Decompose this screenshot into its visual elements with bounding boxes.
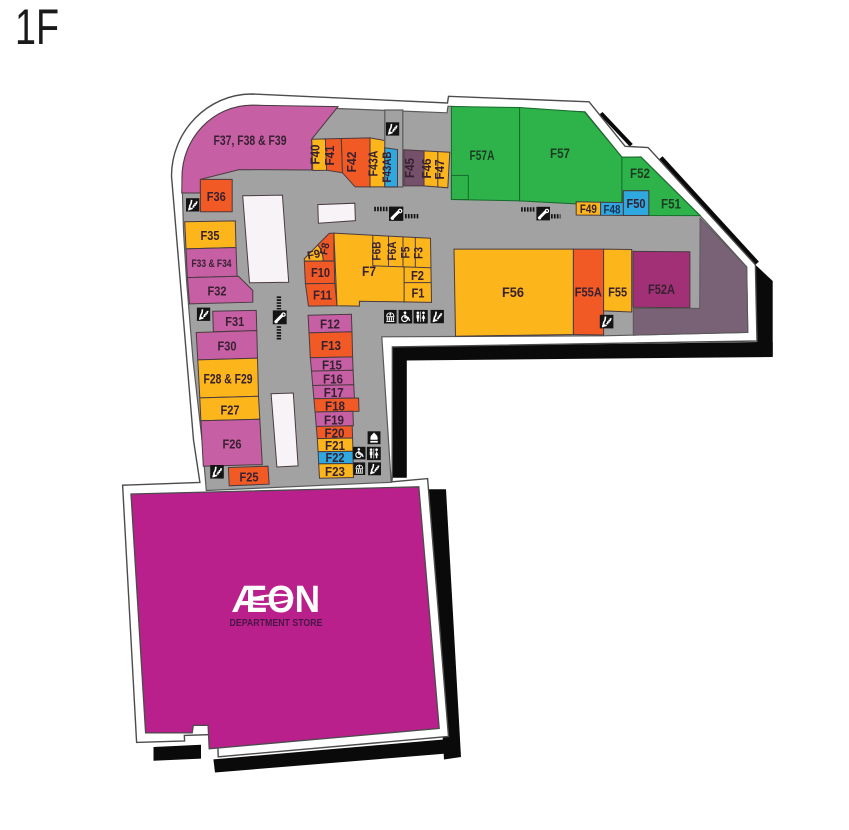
svg-text:F8: F8	[318, 242, 332, 256]
svg-text:F11: F11	[313, 288, 332, 303]
svg-text:F56: F56	[502, 284, 524, 300]
svg-text:1F: 1F	[15, 0, 59, 55]
svg-text:F36: F36	[207, 189, 226, 204]
svg-text:F23: F23	[325, 464, 345, 479]
svg-text:F1: F1	[412, 286, 425, 301]
svg-text:F43AB: F43AB	[382, 152, 394, 183]
svg-text:F5: F5	[398, 246, 412, 258]
svg-text:F22: F22	[326, 451, 345, 465]
svg-text:F42: F42	[344, 152, 359, 173]
svg-text:F25: F25	[240, 470, 259, 485]
svg-text:F50: F50	[627, 197, 646, 211]
svg-text:F45: F45	[403, 158, 417, 178]
svg-text:F55: F55	[608, 286, 627, 300]
svg-text:F41: F41	[323, 145, 337, 165]
svg-text:F49: F49	[580, 204, 597, 216]
svg-text:F35: F35	[201, 228, 220, 243]
svg-text:F26: F26	[223, 437, 242, 452]
svg-text:F28 & F29: F28 & F29	[204, 372, 253, 387]
svg-text:DEPARTMENT STORE: DEPARTMENT STORE	[230, 617, 323, 629]
svg-text:F51: F51	[661, 197, 681, 212]
svg-text:F12: F12	[320, 317, 340, 332]
svg-text:F13: F13	[321, 338, 341, 353]
svg-text:F31: F31	[225, 314, 244, 329]
svg-text:F52A: F52A	[648, 282, 675, 297]
svg-text:F33 & F34: F33 & F34	[192, 258, 233, 270]
svg-text:F3: F3	[412, 247, 426, 259]
svg-text:F55A: F55A	[575, 286, 602, 300]
svg-text:F6B: F6B	[370, 241, 384, 260]
svg-text:F7: F7	[362, 264, 376, 279]
svg-text:F40: F40	[309, 144, 323, 164]
svg-text:F46: F46	[420, 158, 434, 178]
svg-text:ÆON: ÆON	[232, 579, 320, 621]
svg-text:F2: F2	[411, 268, 424, 283]
svg-text:F30: F30	[218, 339, 237, 354]
svg-text:F57A: F57A	[470, 148, 495, 163]
svg-text:F47: F47	[433, 159, 447, 179]
svg-text:F27: F27	[221, 403, 240, 418]
svg-text:F52: F52	[630, 166, 650, 181]
svg-text:F57: F57	[550, 146, 570, 161]
svg-text:F6A: F6A	[385, 241, 399, 260]
svg-text:F10: F10	[311, 265, 330, 280]
svg-text:F43A: F43A	[366, 151, 380, 177]
svg-text:F32: F32	[208, 284, 227, 299]
svg-text:F37, F38 & F39: F37, F38 & F39	[214, 133, 287, 148]
svg-text:F48: F48	[604, 205, 622, 217]
